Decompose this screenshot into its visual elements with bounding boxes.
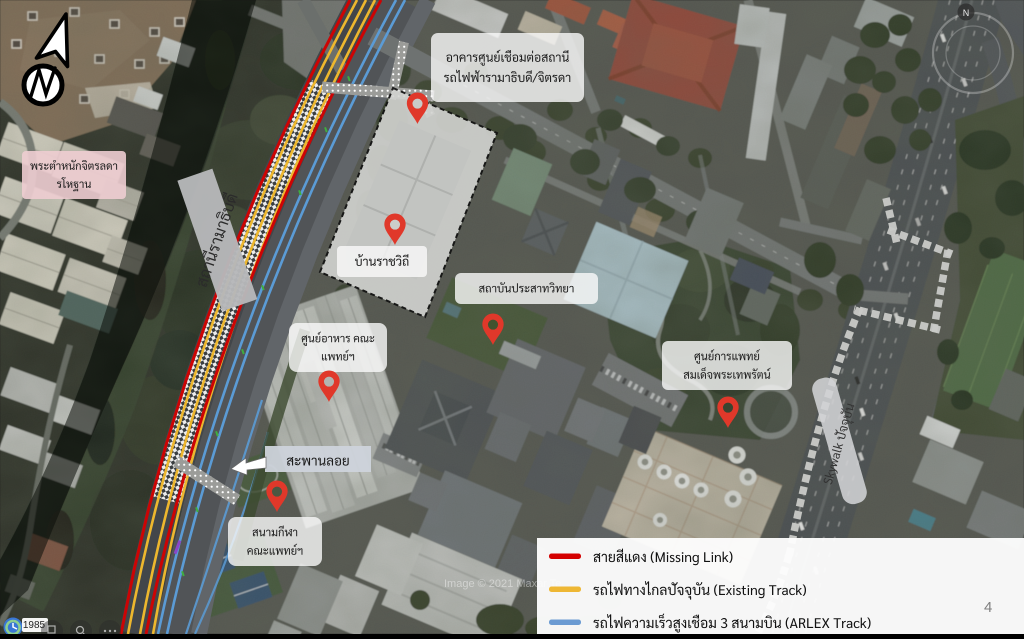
svg-text:4: 4: [984, 599, 992, 616]
svg-text:N: N: [963, 8, 970, 18]
